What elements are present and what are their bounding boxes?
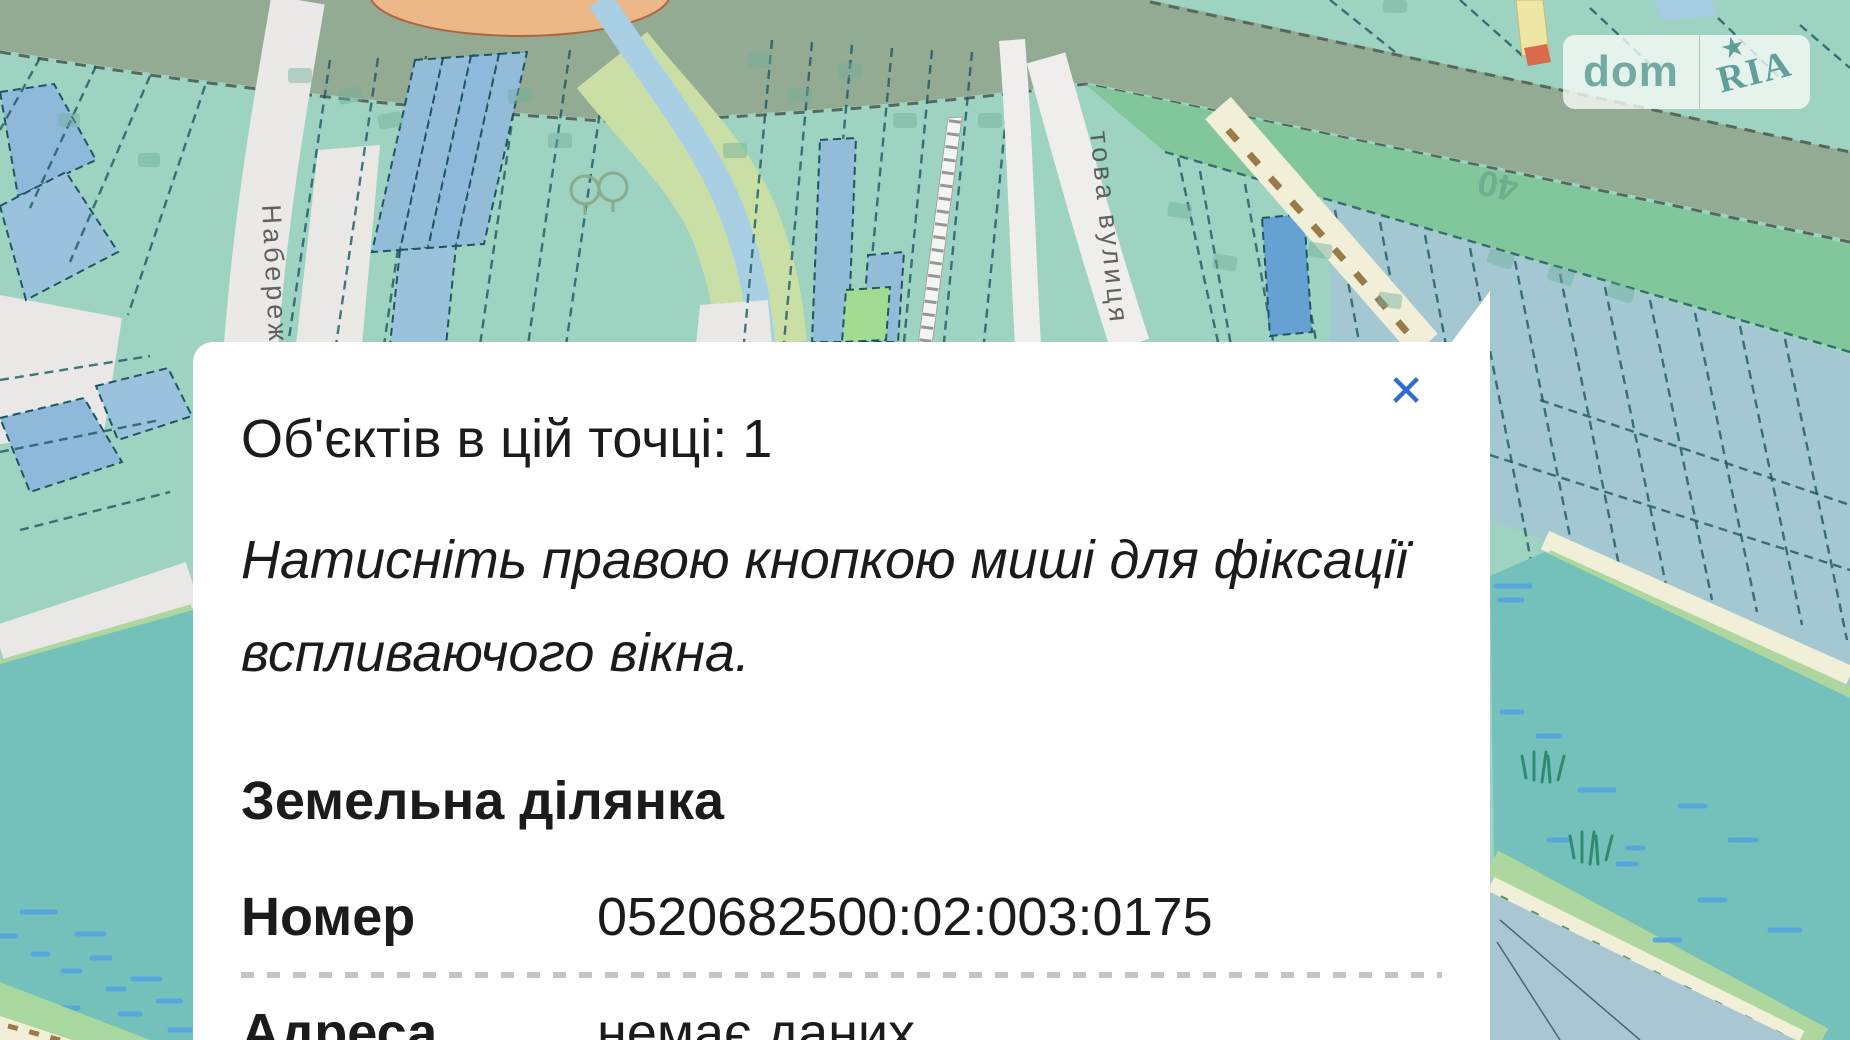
row-value: 0520682500:02:003:0175	[597, 886, 1442, 948]
section-heading: Земельна ділянка	[241, 770, 1442, 832]
popup-hint-line2: вспливаючого вікна.	[241, 623, 750, 683]
logo-dom-text: dom	[1563, 47, 1699, 97]
gray-patch	[696, 300, 772, 345]
popup-hint: Натисніть правою кнопкою миші для фіксац…	[241, 514, 1442, 700]
popup-hint-line1: Натисніть правою кнопкою миші для фіксац…	[241, 530, 1408, 590]
dom-ria-logo: dom ★ RIA	[1563, 35, 1810, 109]
pond-left	[0, 610, 193, 1040]
row-label: Адреса	[241, 1002, 597, 1040]
info-row-number: Номер 0520682500:02:003:0175	[241, 872, 1442, 966]
close-icon[interactable]: ✕	[1380, 366, 1432, 418]
map-info-popup: ✕ Об'єктів в цій точці: 1 Натисніть прав…	[193, 342, 1490, 1040]
popup-title: Об'єктів в цій точці: 1	[241, 408, 1442, 470]
land-marking: 40	[1474, 162, 1522, 210]
screen: 40	[0, 0, 1850, 1040]
row-label: Номер	[241, 886, 597, 948]
row-value: немає даних	[597, 1002, 1442, 1040]
info-row-address: Адреса немає даних	[241, 988, 1442, 1040]
row-separator	[241, 972, 1442, 978]
popup-body: Об'єктів в цій точці: 1 Натисніть правою…	[193, 342, 1490, 1040]
road-center-2	[1012, 40, 1028, 345]
logo-ria-block: ★ RIA	[1700, 50, 1810, 94]
